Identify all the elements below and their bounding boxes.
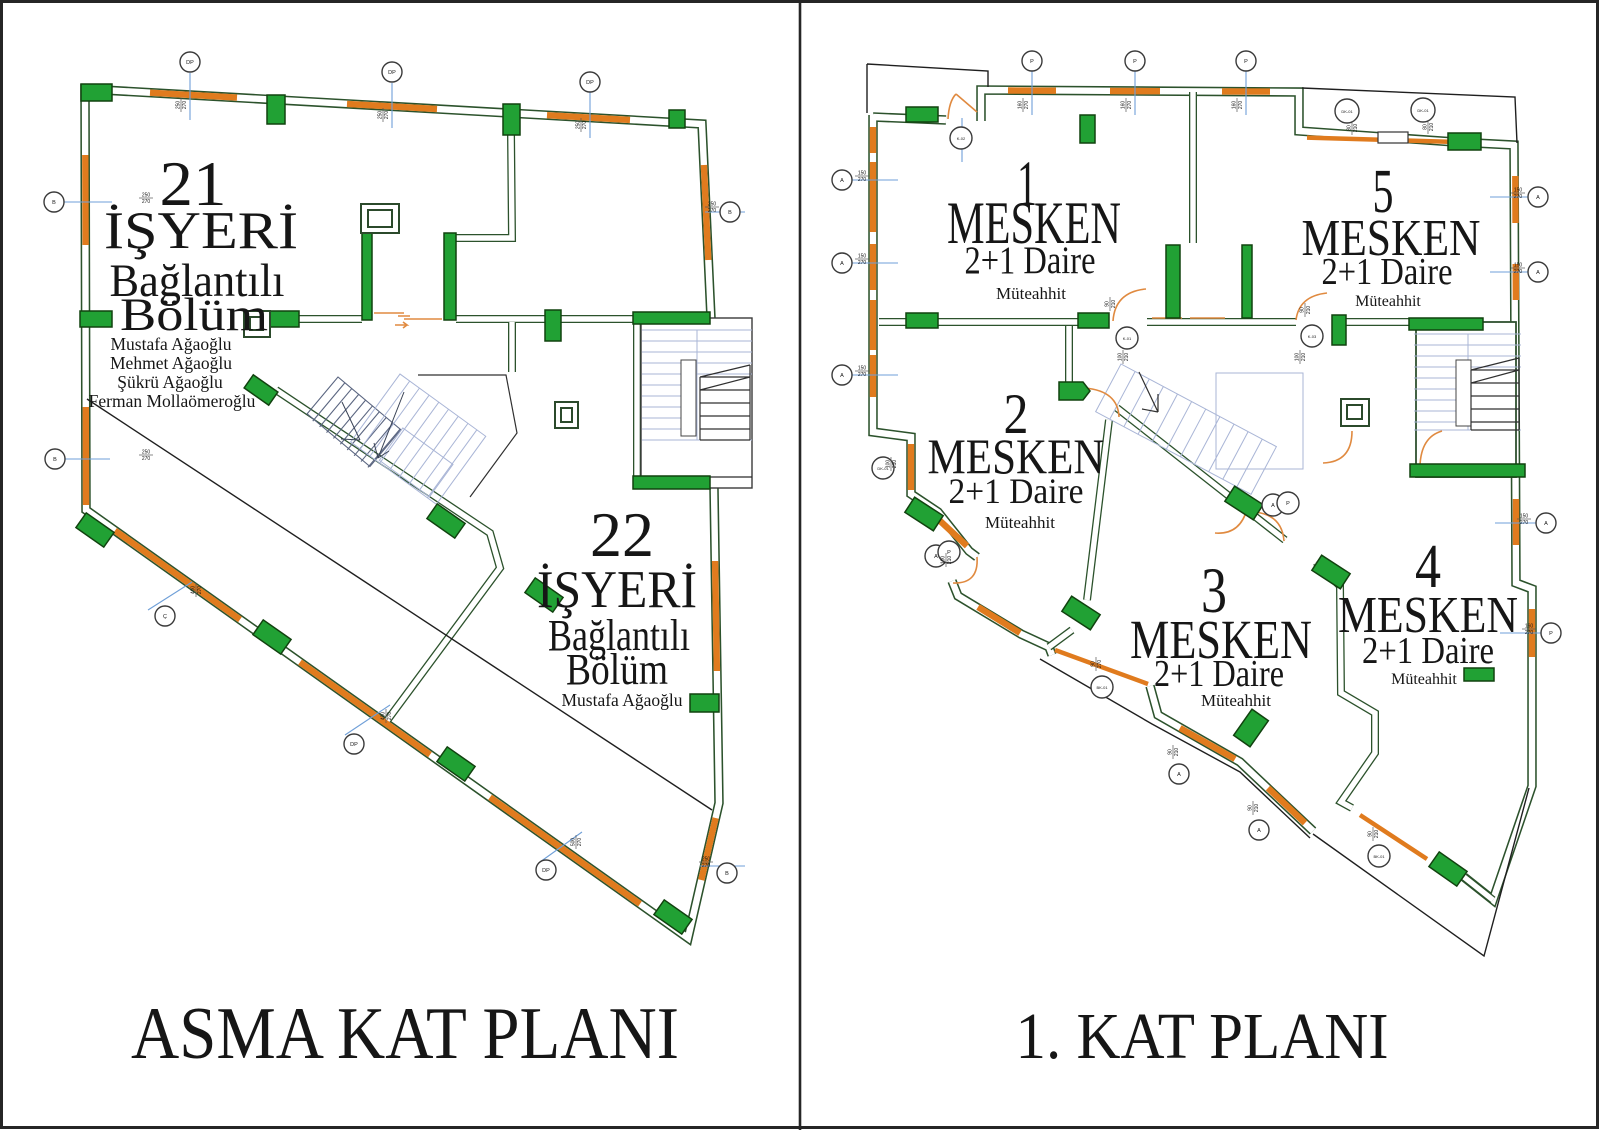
svg-text:270: 270 bbox=[582, 121, 588, 130]
svg-text:DP: DP bbox=[586, 80, 594, 86]
svg-text:BK-01: BK-01 bbox=[1373, 854, 1385, 859]
svg-text:210: 210 bbox=[1254, 804, 1260, 813]
svg-text:270: 270 bbox=[1525, 630, 1534, 636]
svg-text:270: 270 bbox=[1520, 520, 1529, 526]
svg-text:Müteahhit: Müteahhit bbox=[1201, 691, 1271, 710]
svg-text:Ferman Mollaömeroğlu: Ferman Mollaömeroğlu bbox=[89, 391, 256, 411]
svg-text:P: P bbox=[1133, 59, 1137, 65]
svg-text:250: 250 bbox=[176, 101, 182, 110]
svg-text:A: A bbox=[934, 554, 938, 560]
svg-text:K-02: K-02 bbox=[957, 136, 966, 141]
svg-text:2+1 Daire: 2+1 Daire bbox=[1322, 251, 1453, 293]
svg-text:Mustafa Ağaoğlu: Mustafa Ağaoğlu bbox=[561, 690, 682, 710]
svg-text:100: 100 bbox=[886, 460, 892, 469]
svg-text:250: 250 bbox=[142, 450, 151, 456]
svg-text:K-01: K-01 bbox=[1123, 336, 1132, 341]
svg-text:P: P bbox=[1030, 59, 1034, 65]
svg-text:22: 22 bbox=[590, 499, 654, 570]
svg-text:90: 90 bbox=[1091, 661, 1097, 667]
svg-text:DK-01: DK-01 bbox=[1417, 108, 1429, 113]
svg-text:250: 250 bbox=[576, 121, 582, 130]
svg-text:270: 270 bbox=[858, 260, 867, 266]
svg-text:150: 150 bbox=[1514, 263, 1523, 269]
svg-text:Ç: Ç bbox=[163, 614, 167, 620]
svg-text:90: 90 bbox=[1300, 307, 1306, 313]
svg-text:270: 270 bbox=[708, 208, 717, 214]
svg-text:400: 400 bbox=[191, 586, 197, 595]
svg-text:270: 270 bbox=[702, 863, 711, 869]
svg-text:250: 250 bbox=[708, 202, 717, 208]
svg-text:B: B bbox=[728, 210, 732, 216]
svg-text:270: 270 bbox=[1097, 660, 1103, 669]
svg-text:90: 90 bbox=[1168, 749, 1174, 755]
svg-text:DK-01: DK-01 bbox=[1341, 109, 1353, 114]
svg-text:A: A bbox=[840, 178, 844, 184]
svg-text:270: 270 bbox=[858, 177, 867, 183]
svg-text:P: P bbox=[1244, 59, 1248, 65]
svg-text:Mehmet Ağaoğlu: Mehmet Ağaoğlu bbox=[110, 353, 232, 373]
svg-text:150: 150 bbox=[1514, 188, 1523, 194]
svg-text:270: 270 bbox=[1514, 269, 1523, 275]
svg-text:2+1 Daire: 2+1 Daire bbox=[1154, 653, 1284, 695]
svg-text:250: 250 bbox=[702, 857, 711, 863]
svg-text:270: 270 bbox=[384, 111, 390, 120]
svg-text:270: 270 bbox=[1238, 101, 1244, 110]
svg-text:A: A bbox=[1271, 503, 1275, 509]
svg-text:250: 250 bbox=[378, 111, 384, 120]
svg-text:A: A bbox=[1257, 828, 1261, 834]
svg-text:210: 210 bbox=[892, 460, 898, 469]
svg-text:P: P bbox=[1549, 631, 1553, 637]
svg-text:İŞYERİ: İŞYERİ bbox=[104, 202, 298, 260]
svg-text:Müteahhit: Müteahhit bbox=[985, 513, 1055, 532]
svg-text:160: 160 bbox=[1121, 101, 1127, 110]
svg-text:100: 100 bbox=[941, 556, 947, 565]
svg-text:DP: DP bbox=[350, 742, 358, 748]
svg-text:160: 160 bbox=[1525, 624, 1534, 630]
svg-text:Müteahhit: Müteahhit bbox=[996, 284, 1066, 303]
svg-text:A: A bbox=[1544, 521, 1548, 527]
svg-text:160: 160 bbox=[1232, 101, 1238, 110]
svg-text:Bölüm: Bölüm bbox=[566, 645, 668, 694]
svg-text:400: 400 bbox=[381, 712, 387, 721]
svg-text:DP: DP bbox=[542, 868, 550, 874]
svg-text:250: 250 bbox=[142, 193, 151, 199]
svg-text:1. KAT PLANI: 1. KAT PLANI bbox=[1016, 1000, 1389, 1073]
svg-text:150: 150 bbox=[858, 171, 867, 177]
svg-text:B: B bbox=[52, 200, 56, 206]
svg-text:210: 210 bbox=[1353, 124, 1359, 133]
svg-text:150: 150 bbox=[1520, 514, 1529, 520]
svg-text:210: 210 bbox=[1374, 830, 1380, 839]
svg-text:B: B bbox=[53, 457, 57, 463]
svg-text:90: 90 bbox=[1105, 301, 1111, 307]
svg-text:90: 90 bbox=[1248, 805, 1254, 811]
svg-text:DP: DP bbox=[388, 70, 396, 76]
svg-text:Mustafa Ağaoğlu: Mustafa Ağaoğlu bbox=[110, 334, 231, 354]
svg-text:210: 210 bbox=[1174, 748, 1180, 757]
svg-text:2+1 Daire: 2+1 Daire bbox=[949, 471, 1084, 511]
svg-text:270: 270 bbox=[182, 101, 188, 110]
svg-text:210: 210 bbox=[947, 556, 953, 565]
svg-text:100: 100 bbox=[1295, 353, 1301, 362]
svg-text:210: 210 bbox=[1111, 300, 1117, 309]
svg-text:A: A bbox=[840, 373, 844, 379]
svg-text:A: A bbox=[840, 261, 844, 267]
svg-text:90: 90 bbox=[1368, 831, 1374, 837]
svg-text:A: A bbox=[1536, 270, 1540, 276]
svg-text:150: 150 bbox=[858, 254, 867, 260]
svg-text:270: 270 bbox=[577, 838, 583, 847]
svg-text:K-03: K-03 bbox=[1308, 334, 1317, 339]
svg-text:A: A bbox=[1177, 772, 1181, 778]
svg-text:210: 210 bbox=[1429, 123, 1435, 132]
svg-text:80: 80 bbox=[1423, 124, 1429, 130]
svg-text:80: 80 bbox=[1347, 125, 1353, 131]
svg-text:500: 500 bbox=[571, 838, 577, 847]
svg-text:270: 270 bbox=[387, 712, 393, 721]
svg-text:270: 270 bbox=[858, 372, 867, 378]
svg-text:270: 270 bbox=[142, 456, 151, 462]
svg-text:160: 160 bbox=[1018, 101, 1024, 110]
svg-text:B: B bbox=[725, 871, 729, 877]
svg-text:210: 210 bbox=[1306, 306, 1312, 315]
svg-text:A: A bbox=[1536, 195, 1540, 201]
svg-text:P: P bbox=[1286, 501, 1290, 507]
svg-text:270: 270 bbox=[1514, 194, 1523, 200]
svg-text:2+1 Daire: 2+1 Daire bbox=[1362, 630, 1494, 672]
svg-text:Müteahhit: Müteahhit bbox=[1355, 293, 1421, 310]
svg-text:BK-01: BK-01 bbox=[1096, 685, 1108, 690]
svg-text:270: 270 bbox=[197, 586, 203, 595]
svg-text:DP: DP bbox=[186, 60, 194, 66]
svg-text:Müteahhit: Müteahhit bbox=[1391, 671, 1457, 688]
svg-text:ASMA KAT PLANI: ASMA KAT PLANI bbox=[131, 993, 679, 1075]
svg-text:P: P bbox=[947, 550, 951, 556]
svg-text:210: 210 bbox=[1301, 353, 1307, 362]
svg-text:270: 270 bbox=[142, 199, 151, 205]
svg-text:210: 210 bbox=[1124, 353, 1130, 362]
svg-text:270: 270 bbox=[1127, 101, 1133, 110]
svg-text:Şükrü Ağaoğlu: Şükrü Ağaoğlu bbox=[117, 372, 223, 392]
svg-text:150: 150 bbox=[858, 366, 867, 372]
svg-text:270: 270 bbox=[1024, 101, 1030, 110]
svg-text:2+1 Daire: 2+1 Daire bbox=[965, 239, 1096, 282]
svg-text:100: 100 bbox=[1118, 353, 1124, 362]
